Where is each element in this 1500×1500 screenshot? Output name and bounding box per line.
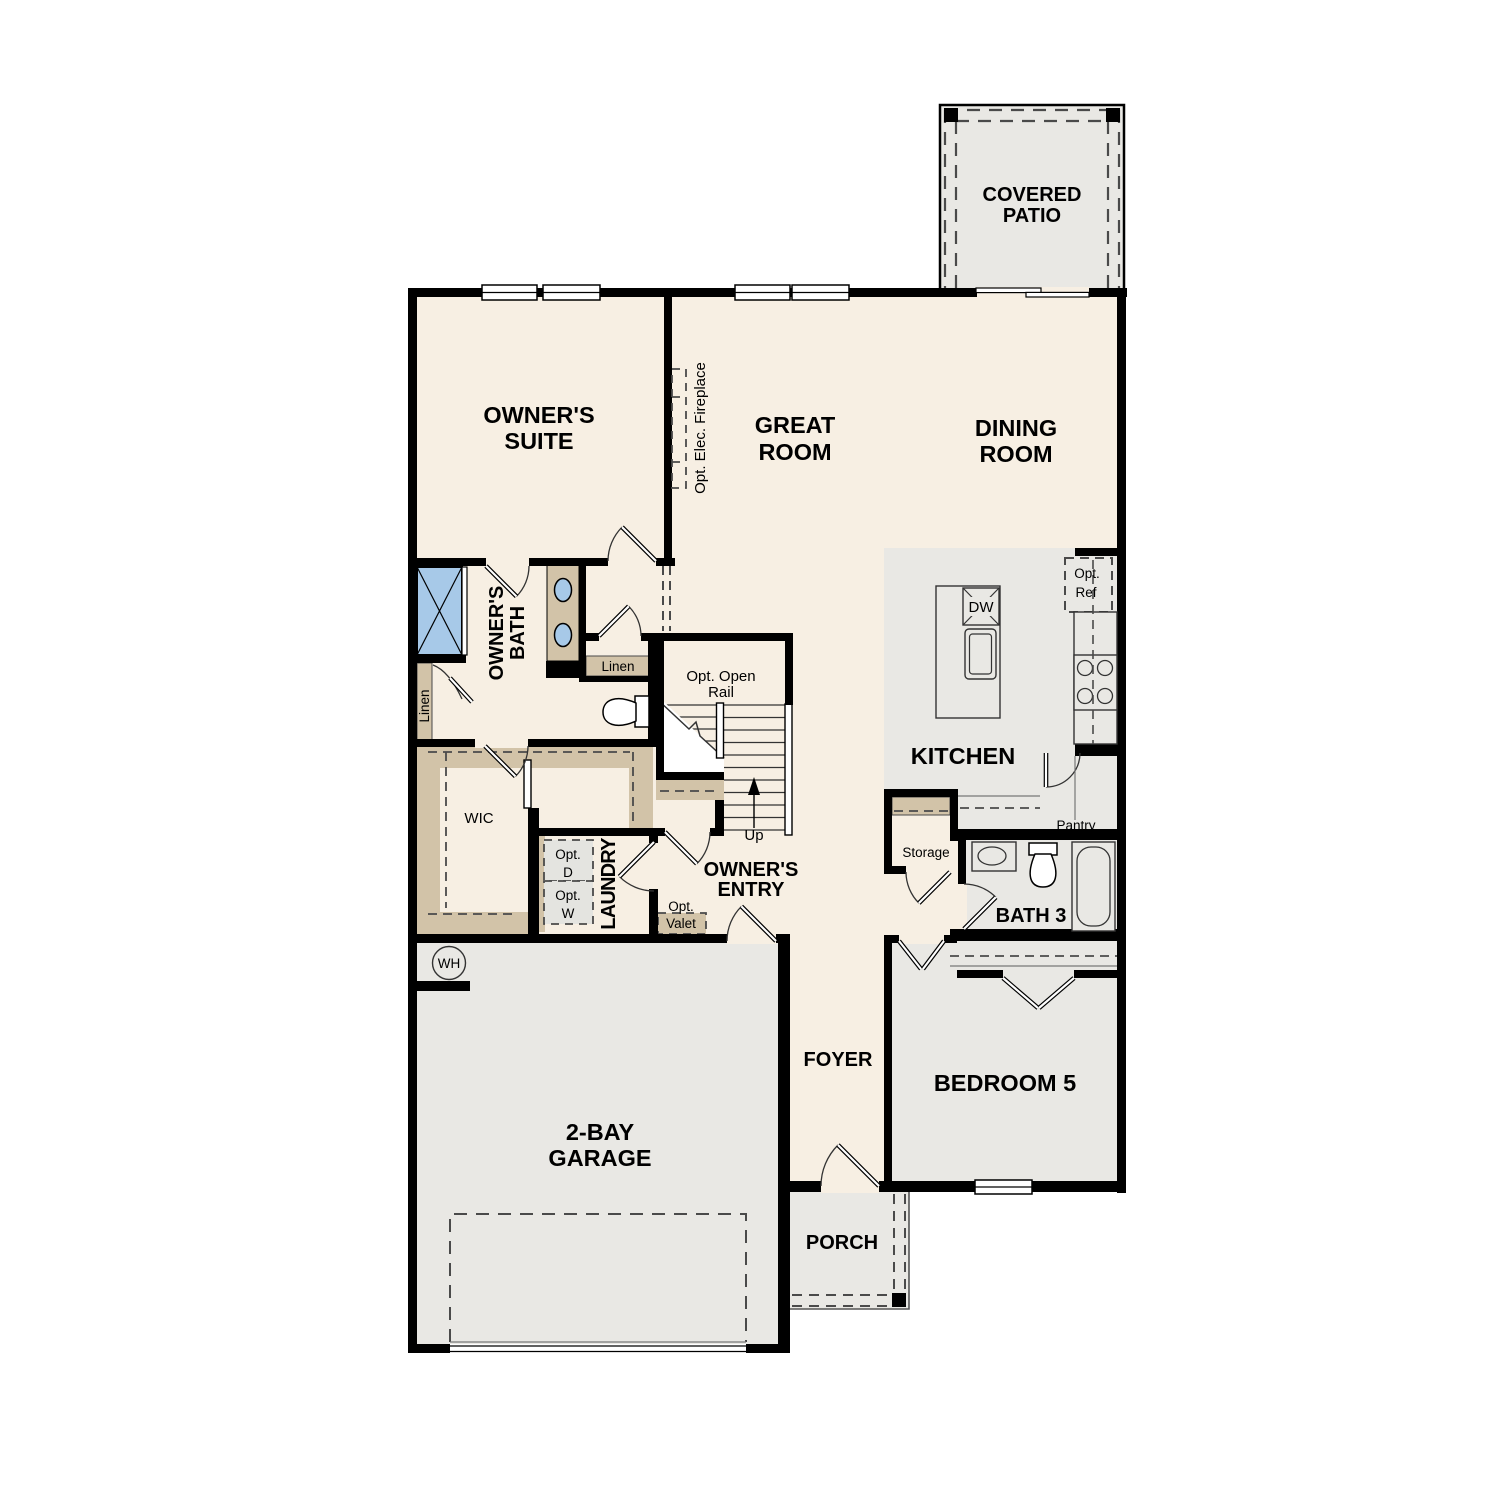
- svg-text:FOYER: FOYER: [804, 1049, 873, 1071]
- svg-text:ROOM: ROOM: [979, 441, 1052, 467]
- svg-text:W: W: [562, 906, 575, 921]
- svg-text:2-BAY: 2-BAY: [566, 1119, 635, 1145]
- svg-text:Opt. Open: Opt. Open: [686, 668, 755, 685]
- svg-text:Pantry: Pantry: [1056, 818, 1095, 833]
- svg-text:Opt.: Opt.: [555, 888, 581, 903]
- svg-text:BEDROOM 5: BEDROOM 5: [934, 1070, 1076, 1096]
- svg-text:ENTRY: ENTRY: [717, 879, 785, 901]
- svg-text:COVERED: COVERED: [983, 184, 1082, 206]
- svg-text:WH: WH: [438, 956, 461, 971]
- svg-text:Rail: Rail: [708, 684, 734, 701]
- svg-text:Opt. Elec. Fireplace: Opt. Elec. Fireplace: [692, 362, 709, 494]
- svg-text:DW: DW: [969, 599, 995, 616]
- svg-text:Ref: Ref: [1075, 585, 1096, 600]
- svg-text:WIC: WIC: [464, 810, 493, 827]
- svg-text:PATIO: PATIO: [1003, 205, 1061, 227]
- svg-text:Linen: Linen: [417, 689, 432, 722]
- svg-text:LAUNDRY: LAUNDRY: [598, 837, 620, 930]
- svg-text:Opt.: Opt.: [1074, 566, 1100, 581]
- svg-text:D: D: [563, 865, 573, 880]
- svg-text:Linen: Linen: [601, 659, 634, 674]
- svg-text:GREAT: GREAT: [755, 412, 836, 438]
- svg-text:OWNER'S: OWNER'S: [483, 402, 594, 428]
- svg-text:Opt.: Opt.: [555, 847, 581, 862]
- svg-text:GARAGE: GARAGE: [548, 1145, 651, 1171]
- svg-text:OWNER'S: OWNER'S: [704, 859, 799, 881]
- svg-text:KITCHEN: KITCHEN: [911, 743, 1015, 769]
- svg-text:Up: Up: [744, 827, 763, 844]
- svg-text:Storage: Storage: [902, 845, 949, 860]
- svg-text:SUITE: SUITE: [504, 428, 573, 454]
- svg-text:Valet: Valet: [666, 916, 696, 931]
- svg-text:OWNER'S: OWNER'S: [486, 586, 508, 681]
- svg-text:Opt.: Opt.: [668, 899, 694, 914]
- svg-text:DINING: DINING: [975, 415, 1057, 441]
- svg-text:BATH 3: BATH 3: [996, 905, 1067, 927]
- svg-text:PORCH: PORCH: [806, 1232, 878, 1254]
- svg-text:BATH: BATH: [507, 606, 529, 660]
- svg-text:ROOM: ROOM: [758, 439, 831, 465]
